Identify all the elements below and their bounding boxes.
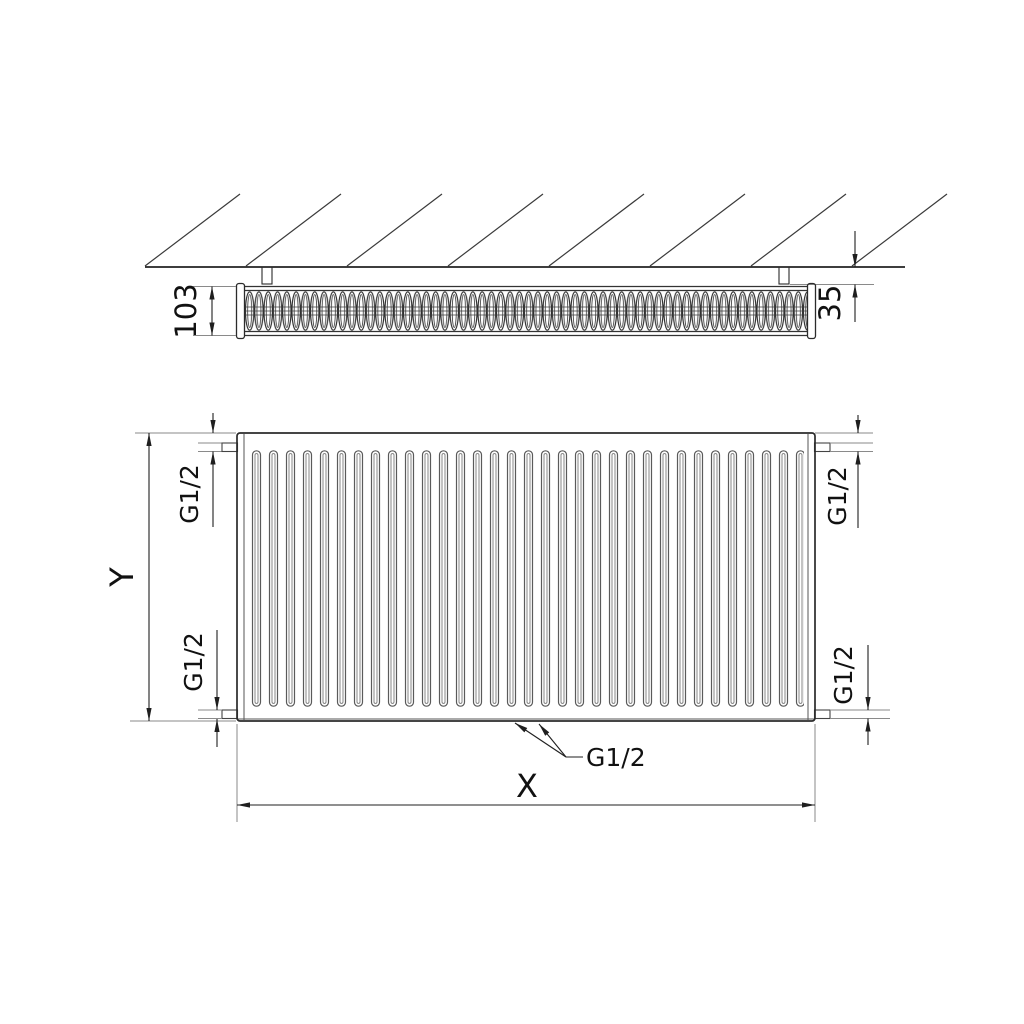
top-view: 103 35: [145, 194, 947, 339]
front-view: Y X G1/2 G1/2 G1/: [103, 413, 890, 822]
leader-thread-bottom-center: G1/2: [514, 721, 646, 772]
width-value: X: [516, 767, 538, 805]
dimension-width-X: X: [237, 767, 815, 808]
dimension-thread-top-right: G1/2: [823, 415, 861, 528]
thread-top-right-value: G1/2: [823, 466, 852, 526]
depth-value: 103: [169, 283, 203, 338]
stub-top-left: [222, 443, 238, 452]
radiator-front-body: [237, 433, 815, 721]
thread-bottom-center-value: G1/2: [586, 743, 646, 772]
mounting-bracket-right: [779, 267, 789, 284]
thread-top-left-value: G1/2: [175, 464, 204, 524]
dimension-thread-bottom-left: G1/2: [179, 630, 220, 747]
panel-corrugations: [248, 450, 804, 707]
stub-bottom-right: [815, 710, 831, 719]
stub-top-right: [815, 443, 831, 452]
dimension-height-Y: Y: [103, 433, 152, 721]
end-cap-left: [237, 284, 245, 339]
radiator-top-view-body: [237, 284, 816, 339]
dimension-thread-top-left: G1/2: [175, 413, 216, 527]
stub-bottom-left: [222, 710, 238, 719]
thread-bottom-right-value: G1/2: [829, 645, 858, 705]
dimension-depth-103: 103: [169, 283, 236, 338]
thread-bottom-left-value: G1/2: [179, 632, 208, 692]
dimension-wall-distance-35: 35: [813, 231, 858, 322]
wall-distance-value: 35: [813, 285, 847, 322]
wall-hatching-icon: [145, 194, 947, 266]
mounting-bracket-left: [262, 267, 272, 284]
radiator-technical-drawing: 103 35: [0, 0, 1024, 1024]
height-value: Y: [103, 567, 141, 588]
dimension-thread-bottom-right: G1/2: [829, 645, 871, 745]
